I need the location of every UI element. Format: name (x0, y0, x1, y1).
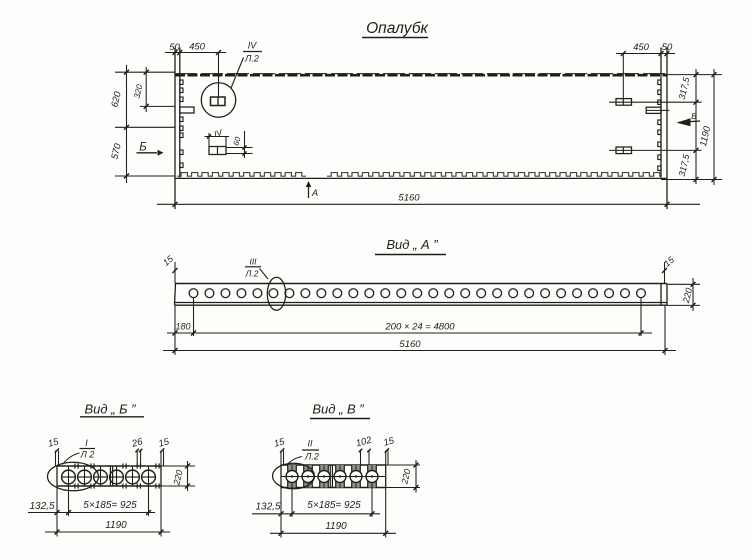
svg-text:220: 220 (681, 287, 694, 305)
svg-text:1190: 1190 (698, 125, 713, 148)
svg-text:15: 15 (382, 435, 396, 449)
svg-text:450: 450 (633, 42, 650, 53)
svg-text:5160: 5160 (398, 193, 420, 204)
svg-text:Вид „ Б ”: Вид „ Б ” (84, 402, 136, 417)
svg-text:5160: 5160 (399, 339, 421, 350)
svg-text:15: 15 (157, 436, 171, 450)
svg-text:200 × 24 = 4800: 200 × 24 = 4800 (384, 322, 455, 333)
svg-text:50: 50 (662, 42, 673, 53)
svg-text:Вид „ В ”: Вид „ В ” (312, 402, 364, 417)
svg-text:132,5: 132,5 (255, 502, 280, 513)
svg-text:620: 620 (109, 90, 123, 109)
svg-text:220: 220 (399, 468, 412, 486)
svg-text:317,5: 317,5 (677, 152, 692, 177)
svg-text:Вид „ А ”: Вид „ А ” (386, 237, 438, 252)
svg-text:IV: IV (213, 127, 225, 139)
svg-text:Опалубк: Опалубк (366, 20, 428, 37)
svg-text:450: 450 (189, 42, 206, 53)
svg-text:Л.2: Л.2 (245, 269, 259, 279)
svg-text:IV: IV (248, 41, 258, 51)
svg-text:132,5: 132,5 (29, 501, 54, 512)
svg-text:570: 570 (109, 142, 123, 161)
svg-text:А: А (311, 188, 318, 198)
svg-text:II: II (307, 439, 313, 449)
svg-text:102: 102 (355, 435, 374, 450)
svg-text:5×185= 925: 5×185= 925 (307, 500, 361, 511)
svg-text:Л.2: Л.2 (304, 452, 319, 462)
svg-text:1190: 1190 (105, 520, 127, 531)
svg-text:26: 26 (130, 436, 145, 450)
svg-text:15: 15 (47, 436, 61, 450)
svg-text:1190: 1190 (325, 521, 347, 532)
svg-text:60: 60 (232, 135, 243, 146)
svg-text:I: I (85, 438, 88, 448)
svg-text:5×185= 925: 5×185= 925 (83, 500, 137, 511)
svg-text:15: 15 (161, 253, 176, 268)
svg-text:180: 180 (175, 322, 190, 332)
svg-text:Л.2: Л.2 (244, 54, 259, 64)
svg-text:50: 50 (169, 42, 180, 53)
svg-text:320: 320 (132, 83, 145, 99)
svg-text:317,5: 317,5 (677, 75, 692, 100)
svg-text:Л 2: Л 2 (80, 450, 95, 460)
svg-text:220: 220 (171, 469, 184, 487)
svg-text:15: 15 (273, 436, 287, 450)
svg-text:III: III (249, 257, 257, 267)
svg-text:Б: Б (139, 142, 147, 154)
